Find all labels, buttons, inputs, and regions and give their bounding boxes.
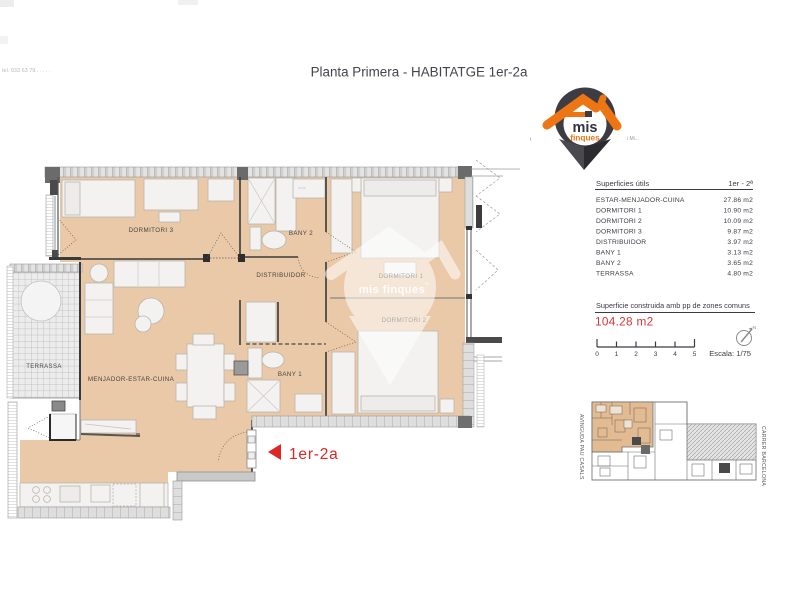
svg-text:TERRASSA: TERRASSA xyxy=(26,364,62,370)
svg-text:1er-2a: 1er-2a xyxy=(289,446,339,463)
svg-text:ESTAR-MENJADOR-CUINA: ESTAR-MENJADOR-CUINA xyxy=(596,197,685,204)
svg-text:CARRER BARCELONA: CARRER BARCELONA xyxy=(760,426,766,486)
svg-text:9.87 m2: 9.87 m2 xyxy=(727,229,753,236)
svg-text:Superficie construida amb pp d: Superficie construida amb pp de zones co… xyxy=(596,301,750,310)
svg-text:Escala: 1/75: Escala: 1/75 xyxy=(709,349,751,358)
svg-text:5: 5 xyxy=(693,351,697,358)
svg-text:3.13 m2: 3.13 m2 xyxy=(727,250,753,257)
svg-text:4: 4 xyxy=(673,351,677,358)
svg-text:DORMITORI 3: DORMITORI 3 xyxy=(129,227,174,234)
svg-text:1er - 2ª: 1er - 2ª xyxy=(728,179,753,188)
svg-text:0: 0 xyxy=(595,351,599,358)
svg-text:BANY 1: BANY 1 xyxy=(278,371,302,378)
svg-text:DORMITORI 3: DORMITORI 3 xyxy=(596,229,642,236)
svg-text:27.86 m2: 27.86 m2 xyxy=(724,197,754,204)
svg-text:BANY 2: BANY 2 xyxy=(596,260,621,267)
svg-text:t: t xyxy=(530,137,532,143)
svg-text:10.90 m2: 10.90 m2 xyxy=(724,208,754,215)
svg-text:Superficies útils: Superficies útils xyxy=(596,179,649,188)
svg-text:DORMITORI 2: DORMITORI 2 xyxy=(596,218,642,225)
svg-text:DISTRIBUIDOR: DISTRIBUIDOR xyxy=(596,239,646,246)
svg-text:finques: finques xyxy=(570,133,600,143)
svg-text:104.28 m2: 104.28 m2 xyxy=(595,315,653,329)
svg-text:1: 1 xyxy=(615,351,619,358)
svg-text:i Mi...: i Mi... xyxy=(627,136,639,142)
svg-text:3.65 m2: 3.65 m2 xyxy=(727,260,753,267)
svg-text:3: 3 xyxy=(654,351,658,358)
svg-text:™: ™ xyxy=(424,282,429,288)
svg-text:DORMITORI 1: DORMITORI 1 xyxy=(596,208,642,215)
svg-text:10.09 m2: 10.09 m2 xyxy=(724,218,754,225)
svg-text:mis finques: mis finques xyxy=(359,284,426,296)
svg-text:2: 2 xyxy=(634,351,638,358)
svg-text:BANY 2: BANY 2 xyxy=(289,230,313,237)
svg-text:tel. 933 63 79 . . . . .: tel. 933 63 79 . . . . . xyxy=(2,68,51,74)
svg-text:Planta Primera - HABITATGE 1er: Planta Primera - HABITATGE 1er-2a xyxy=(311,65,528,80)
svg-text:BANY 1: BANY 1 xyxy=(596,250,621,257)
svg-text:3.97 m2: 3.97 m2 xyxy=(727,239,753,246)
svg-text:TERRASSA: TERRASSA xyxy=(596,271,634,278)
svg-text:AVINGUDA PAU CASALS: AVINGUDA PAU CASALS xyxy=(578,414,584,480)
svg-text:MENJADOR-ESTAR-CUINA: MENJADOR-ESTAR-CUINA xyxy=(88,376,175,383)
svg-text:N: N xyxy=(753,325,756,330)
svg-text:DISTRIBUIDOR: DISTRIBUIDOR xyxy=(256,272,305,279)
svg-text:4.80 m2: 4.80 m2 xyxy=(727,271,753,278)
